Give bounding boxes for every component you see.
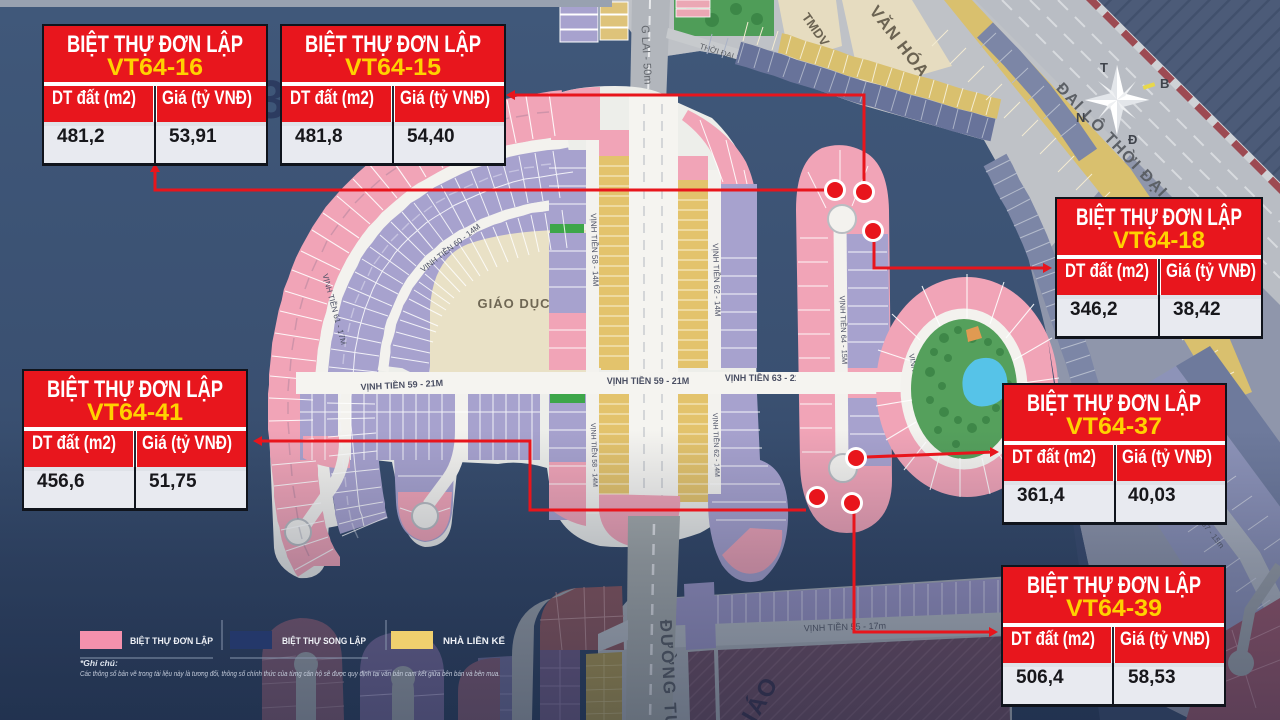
svg-text:Giá (tỷ VNĐ): Giá (tỷ VNĐ) <box>1120 629 1210 650</box>
svg-text:VT64-41: VT64-41 <box>87 399 183 426</box>
svg-text:481,2: 481,2 <box>57 126 105 147</box>
svg-text:DT đất (m2): DT đất (m2) <box>1012 447 1096 468</box>
svg-text:DT đất (m2): DT đất (m2) <box>1065 261 1149 282</box>
svg-text:53,91: 53,91 <box>169 126 217 147</box>
svg-text:T: T <box>1100 60 1108 75</box>
svg-text:361,4: 361,4 <box>1017 485 1065 506</box>
svg-text:DT đất (m2): DT đất (m2) <box>32 433 116 454</box>
svg-text:506,4: 506,4 <box>1016 667 1064 688</box>
svg-text:Giá (tỷ VNĐ): Giá (tỷ VNĐ) <box>1166 261 1256 282</box>
svg-text:NHÀ LIỀN KẾ: NHÀ LIỀN KẾ <box>443 636 505 646</box>
svg-text:DT đất (m2): DT đất (m2) <box>1011 629 1095 650</box>
svg-text:GIÁO DỤC: GIÁO DỤC <box>478 296 551 311</box>
svg-text:VỊNH TIỀN 59 - 21M: VỊNH TIỀN 59 - 21M <box>607 376 690 386</box>
svg-text:BIỆT THỰ ĐƠN LẬP: BIỆT THỰ ĐƠN LẬP <box>130 635 213 646</box>
svg-text:38,42: 38,42 <box>1173 299 1221 320</box>
svg-text:Giá (tỷ VNĐ): Giá (tỷ VNĐ) <box>1122 447 1212 468</box>
svg-text:54,40: 54,40 <box>407 126 455 147</box>
svg-text:VT64-16: VT64-16 <box>107 54 203 81</box>
svg-text:B: B <box>1160 76 1169 91</box>
svg-text:Giá (tỷ VNĐ): Giá (tỷ VNĐ) <box>142 433 232 454</box>
svg-text:51,75: 51,75 <box>149 471 197 492</box>
svg-text:VỊNH TIỀN 63 - 21M: VỊNH TIỀN 63 - 21M <box>725 373 808 383</box>
svg-text:346,2: 346,2 <box>1070 299 1118 320</box>
svg-text:58,53: 58,53 <box>1128 667 1176 688</box>
svg-text:*Ghi chú:: *Ghi chú: <box>80 658 118 668</box>
svg-text:BIỆT THỰ SONG LẬP: BIỆT THỰ SONG LẬP <box>282 635 366 646</box>
svg-text:VT64-39: VT64-39 <box>1066 595 1162 622</box>
svg-text:Đ: Đ <box>1128 132 1137 147</box>
svg-text:DT đất (m2): DT đất (m2) <box>290 88 374 109</box>
svg-text:VT64-18: VT64-18 <box>1113 227 1205 254</box>
svg-text:481,8: 481,8 <box>295 126 343 147</box>
svg-text:Giá (tỷ VNĐ): Giá (tỷ VNĐ) <box>162 88 252 109</box>
svg-text:N: N <box>1076 110 1085 125</box>
svg-text:VT64-15: VT64-15 <box>345 54 441 81</box>
svg-text:DT đất (m2): DT đất (m2) <box>52 88 136 109</box>
svg-text:VT64-37: VT64-37 <box>1066 413 1162 440</box>
svg-text:Các thông số bản vẽ trong tài: Các thông số bản vẽ trong tài liệu này l… <box>80 670 500 678</box>
svg-text:40,03: 40,03 <box>1128 485 1176 506</box>
svg-text:456,6: 456,6 <box>37 471 85 492</box>
svg-text:Giá (tỷ VNĐ): Giá (tỷ VNĐ) <box>400 88 490 109</box>
